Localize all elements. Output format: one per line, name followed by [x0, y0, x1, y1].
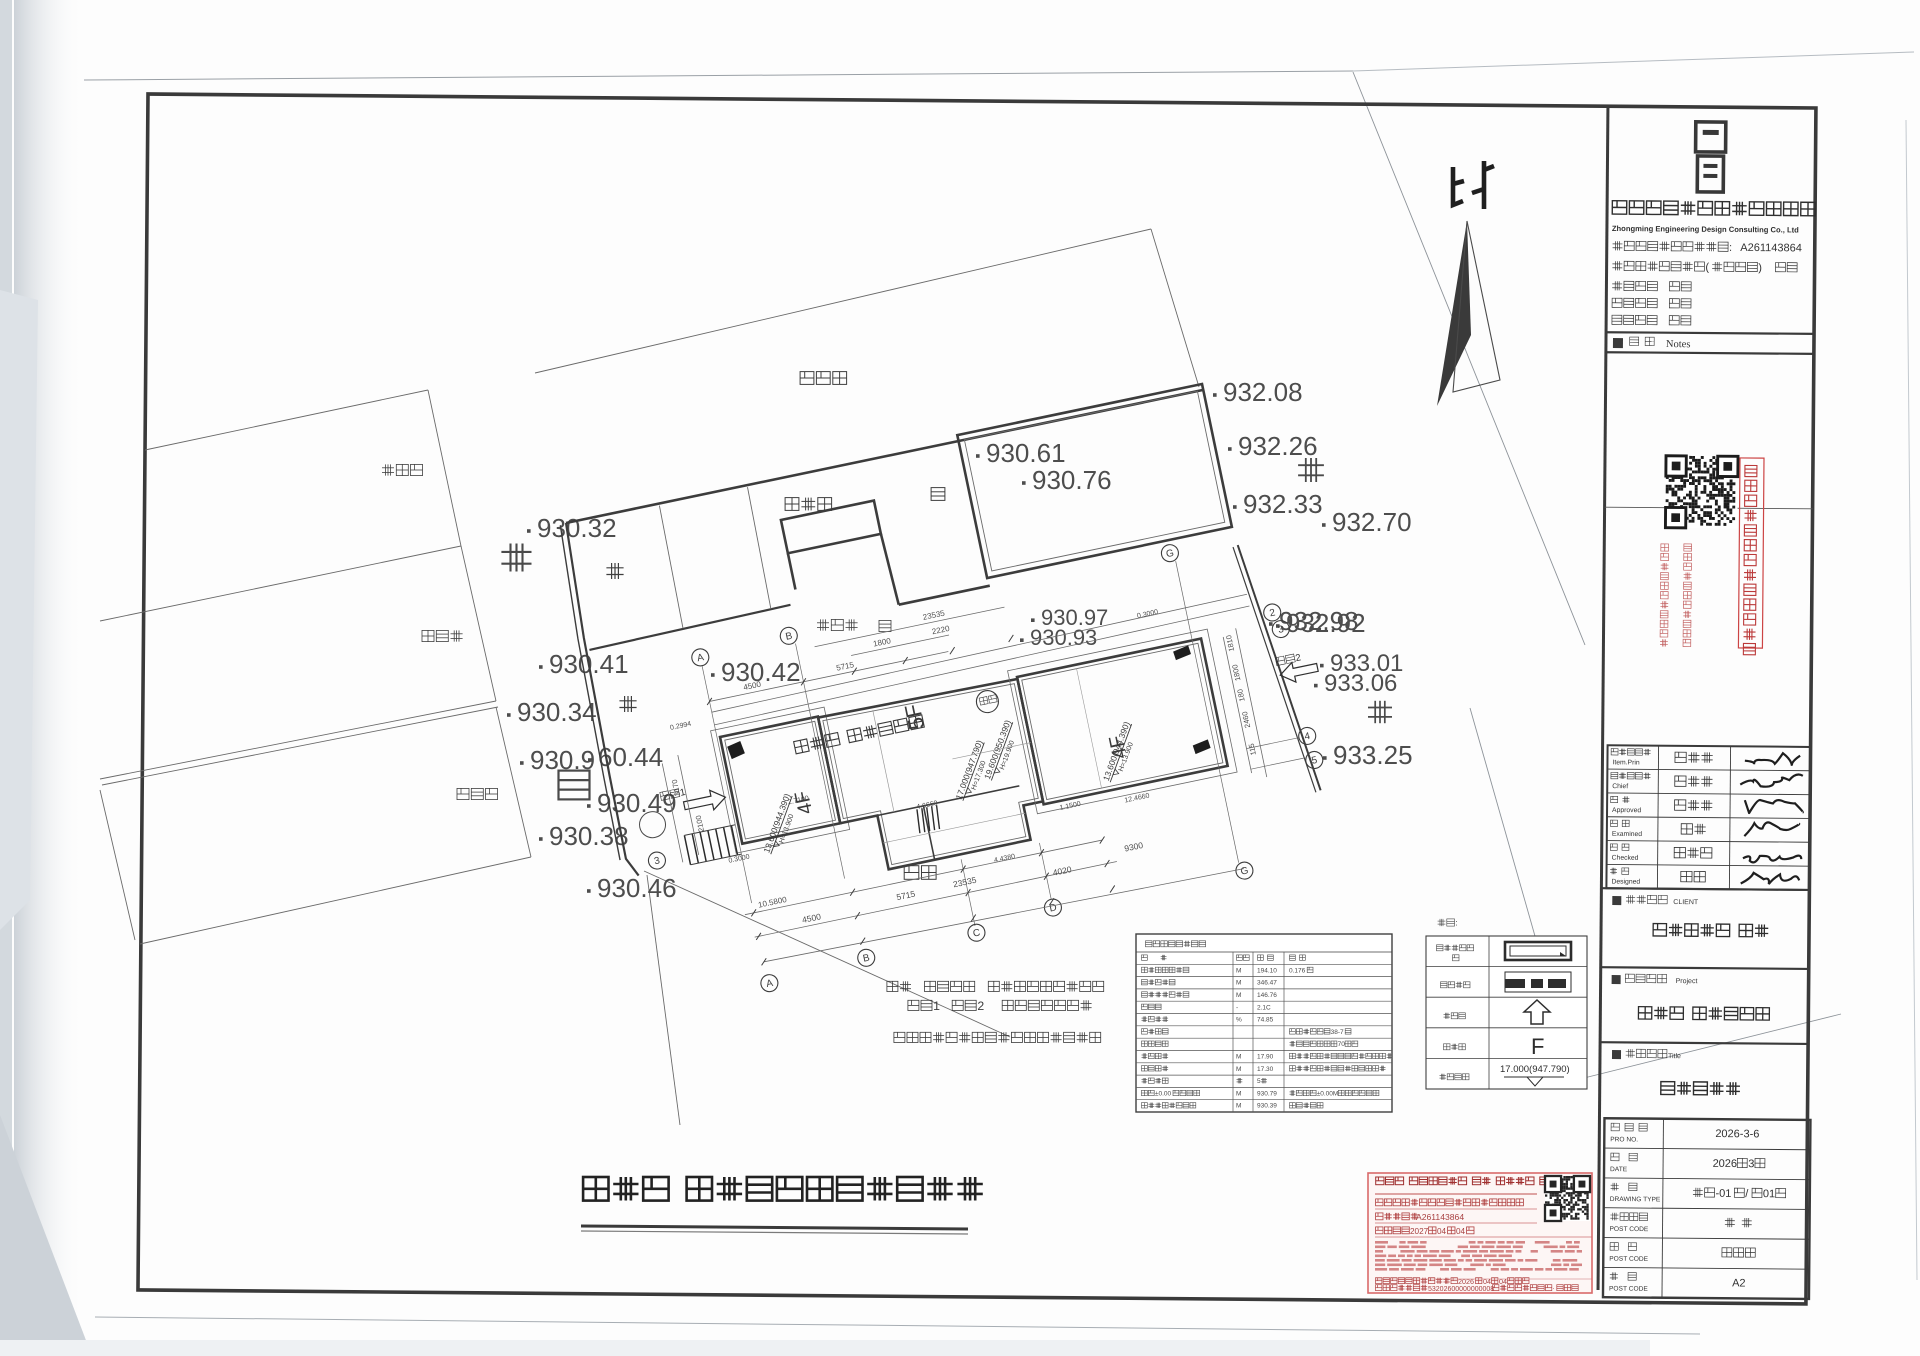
svg-text:F: F [1531, 1034, 1544, 1059]
svg-text:932.26: 932.26 [1238, 431, 1318, 461]
svg-text:CLIENT: CLIENT [1673, 899, 1699, 906]
svg-text:POST CODE: POST CODE [1610, 1226, 1649, 1233]
svg-text:933.25: 933.25 [1333, 740, 1413, 770]
svg-text:2: 2 [977, 999, 984, 1013]
svg-text:(: ( [1705, 262, 1709, 274]
svg-text:932.08: 932.08 [1223, 377, 1303, 407]
svg-text:%: % [1236, 1017, 1242, 1024]
svg-text:-01: -01 [1715, 1188, 1731, 1200]
svg-text:930.32: 930.32 [537, 513, 617, 543]
svg-text:932.70: 932.70 [1332, 507, 1412, 537]
svg-text:146.76: 146.76 [1257, 992, 1277, 999]
svg-text:1: 1 [933, 999, 940, 1013]
svg-text:-: - [1236, 1004, 1238, 1011]
svg-text:2.1C: 2.1C [1257, 1004, 1271, 1011]
svg-text:194.10: 194.10 [1257, 967, 1277, 974]
svg-text:M: M [1236, 1054, 1241, 1061]
svg-text:Notes: Notes [1666, 339, 1691, 350]
svg-text:70: 70 [1338, 1041, 1346, 1048]
svg-text:Examined: Examined [1612, 831, 1643, 838]
svg-text:Title: Title [1668, 1053, 1681, 1060]
svg-text:17.30: 17.30 [1257, 1066, 1274, 1073]
svg-text:930.34: 930.34 [517, 697, 597, 727]
svg-text:M: M [1236, 1103, 1241, 1110]
svg-text:17.90: 17.90 [1257, 1054, 1274, 1061]
svg-text:Project: Project [1676, 978, 1698, 985]
svg-text:M: M [1236, 980, 1241, 987]
svg-text:A2: A2 [1732, 1277, 1746, 1289]
svg-text:930.61: 930.61 [986, 438, 1066, 468]
svg-text:930.42: 930.42 [721, 657, 801, 687]
svg-text:Approved: Approved [1612, 807, 1641, 814]
svg-text:Checked: Checked [1612, 855, 1639, 862]
svg-text:04: 04 [1483, 1277, 1491, 1286]
svg-text:932.33: 932.33 [1243, 489, 1323, 519]
svg-text:POST CODE: POST CODE [1609, 1285, 1648, 1292]
svg-text:Chief: Chief [1612, 783, 1628, 790]
svg-text:3: 3 [1748, 1158, 1754, 1170]
svg-text:74.85: 74.85 [1257, 1017, 1274, 1024]
svg-text:): ) [1758, 262, 1762, 274]
svg-text:4F: 4F [791, 789, 817, 816]
svg-text:±0.00M: ±0.00M [1317, 1090, 1339, 1097]
svg-text:A261143864: A261143864 [1416, 1212, 1464, 1222]
svg-text:38-7: 38-7 [1331, 1029, 1344, 1036]
svg-text:2027: 2027 [1410, 1227, 1429, 1236]
svg-text:M: M [1236, 992, 1241, 999]
svg-text:Designed: Designed [1611, 878, 1640, 885]
svg-text:5F: 5F [900, 702, 930, 732]
svg-text:Zhongming Engineering Design C: Zhongming Engineering Design Consulting … [1612, 224, 1799, 235]
svg-text:2026: 2026 [1713, 1158, 1738, 1170]
svg-text:0.176: 0.176 [1289, 967, 1306, 974]
svg-text:930.39: 930.39 [1257, 1103, 1277, 1110]
svg-text::: : [1729, 242, 1732, 254]
svg-text:PRO NO.: PRO NO. [1610, 1136, 1638, 1143]
svg-text:53202600000000008: 53202600000000008 [1428, 1286, 1494, 1293]
svg-text:930.38: 930.38 [549, 821, 629, 851]
svg-text:930.79: 930.79 [1257, 1090, 1277, 1097]
svg-text:M: M [1236, 1090, 1241, 1097]
svg-text:346.47: 346.47 [1257, 980, 1277, 987]
svg-text:2026: 2026 [1458, 1277, 1474, 1286]
svg-text:17.000(947.790): 17.000(947.790) [1500, 1064, 1570, 1075]
svg-text:M: M [1236, 1066, 1241, 1073]
svg-text:04: 04 [1437, 1227, 1447, 1236]
svg-text:5: 5 [1257, 1078, 1261, 1085]
svg-text:±0.00: ±0.00 [1155, 1090, 1172, 1097]
svg-text:M: M [1236, 967, 1241, 974]
svg-text:930.46: 930.46 [597, 873, 677, 903]
svg-text:932.92: 932.92 [1286, 608, 1366, 638]
svg-text::: : [1455, 918, 1457, 928]
svg-text:930.9: 930.9 [530, 745, 595, 775]
svg-text:DATE: DATE [1610, 1166, 1628, 1173]
svg-text:Item.Prin: Item.Prin [1612, 759, 1639, 766]
svg-text:·: · [1552, 1284, 1554, 1292]
svg-text:04: 04 [1499, 1277, 1507, 1286]
svg-text:POST CODE: POST CODE [1609, 1256, 1648, 1263]
svg-text:933.06: 933.06 [1324, 670, 1397, 697]
svg-text:01: 01 [1763, 1188, 1775, 1200]
svg-text:DRAWING TYPE: DRAWING TYPE [1610, 1196, 1661, 1203]
svg-text:930.76: 930.76 [1032, 465, 1112, 495]
svg-text:2026-3-6: 2026-3-6 [1715, 1128, 1759, 1140]
svg-text:04: 04 [1456, 1227, 1466, 1236]
svg-text:930.93: 930.93 [1030, 625, 1097, 650]
svg-text:A261143864: A261143864 [1740, 242, 1802, 255]
